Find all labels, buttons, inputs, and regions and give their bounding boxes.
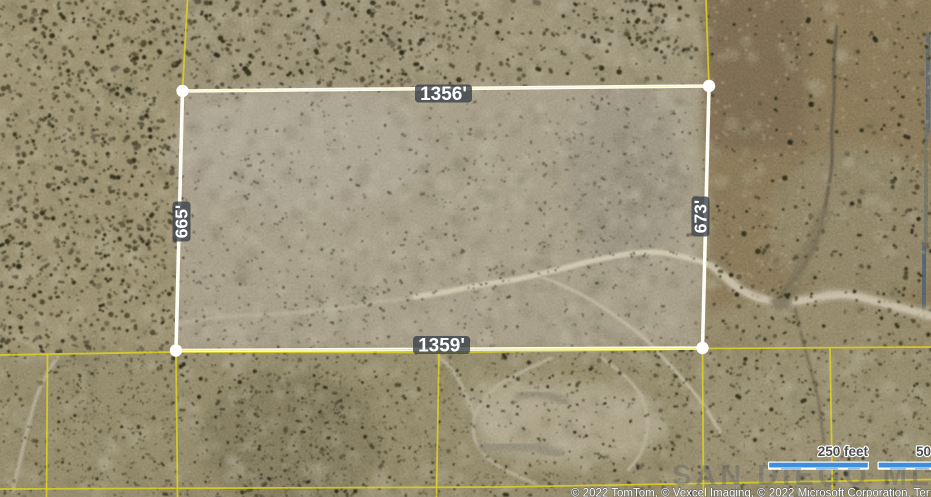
svg-text:673': 673' — [691, 200, 711, 233]
svg-text:1356': 1356' — [420, 84, 467, 105]
svg-text:250 feet: 250 feet — [818, 444, 869, 459]
svg-text:1359': 1359' — [418, 336, 465, 357]
svg-text:665': 665' — [172, 205, 192, 238]
svg-text:500 m: 500 m — [916, 444, 931, 459]
svg-text:© 2022 TomTom, © Vexcel Imagin: © 2022 TomTom, © Vexcel Imaging, © 2022 … — [571, 488, 930, 497]
